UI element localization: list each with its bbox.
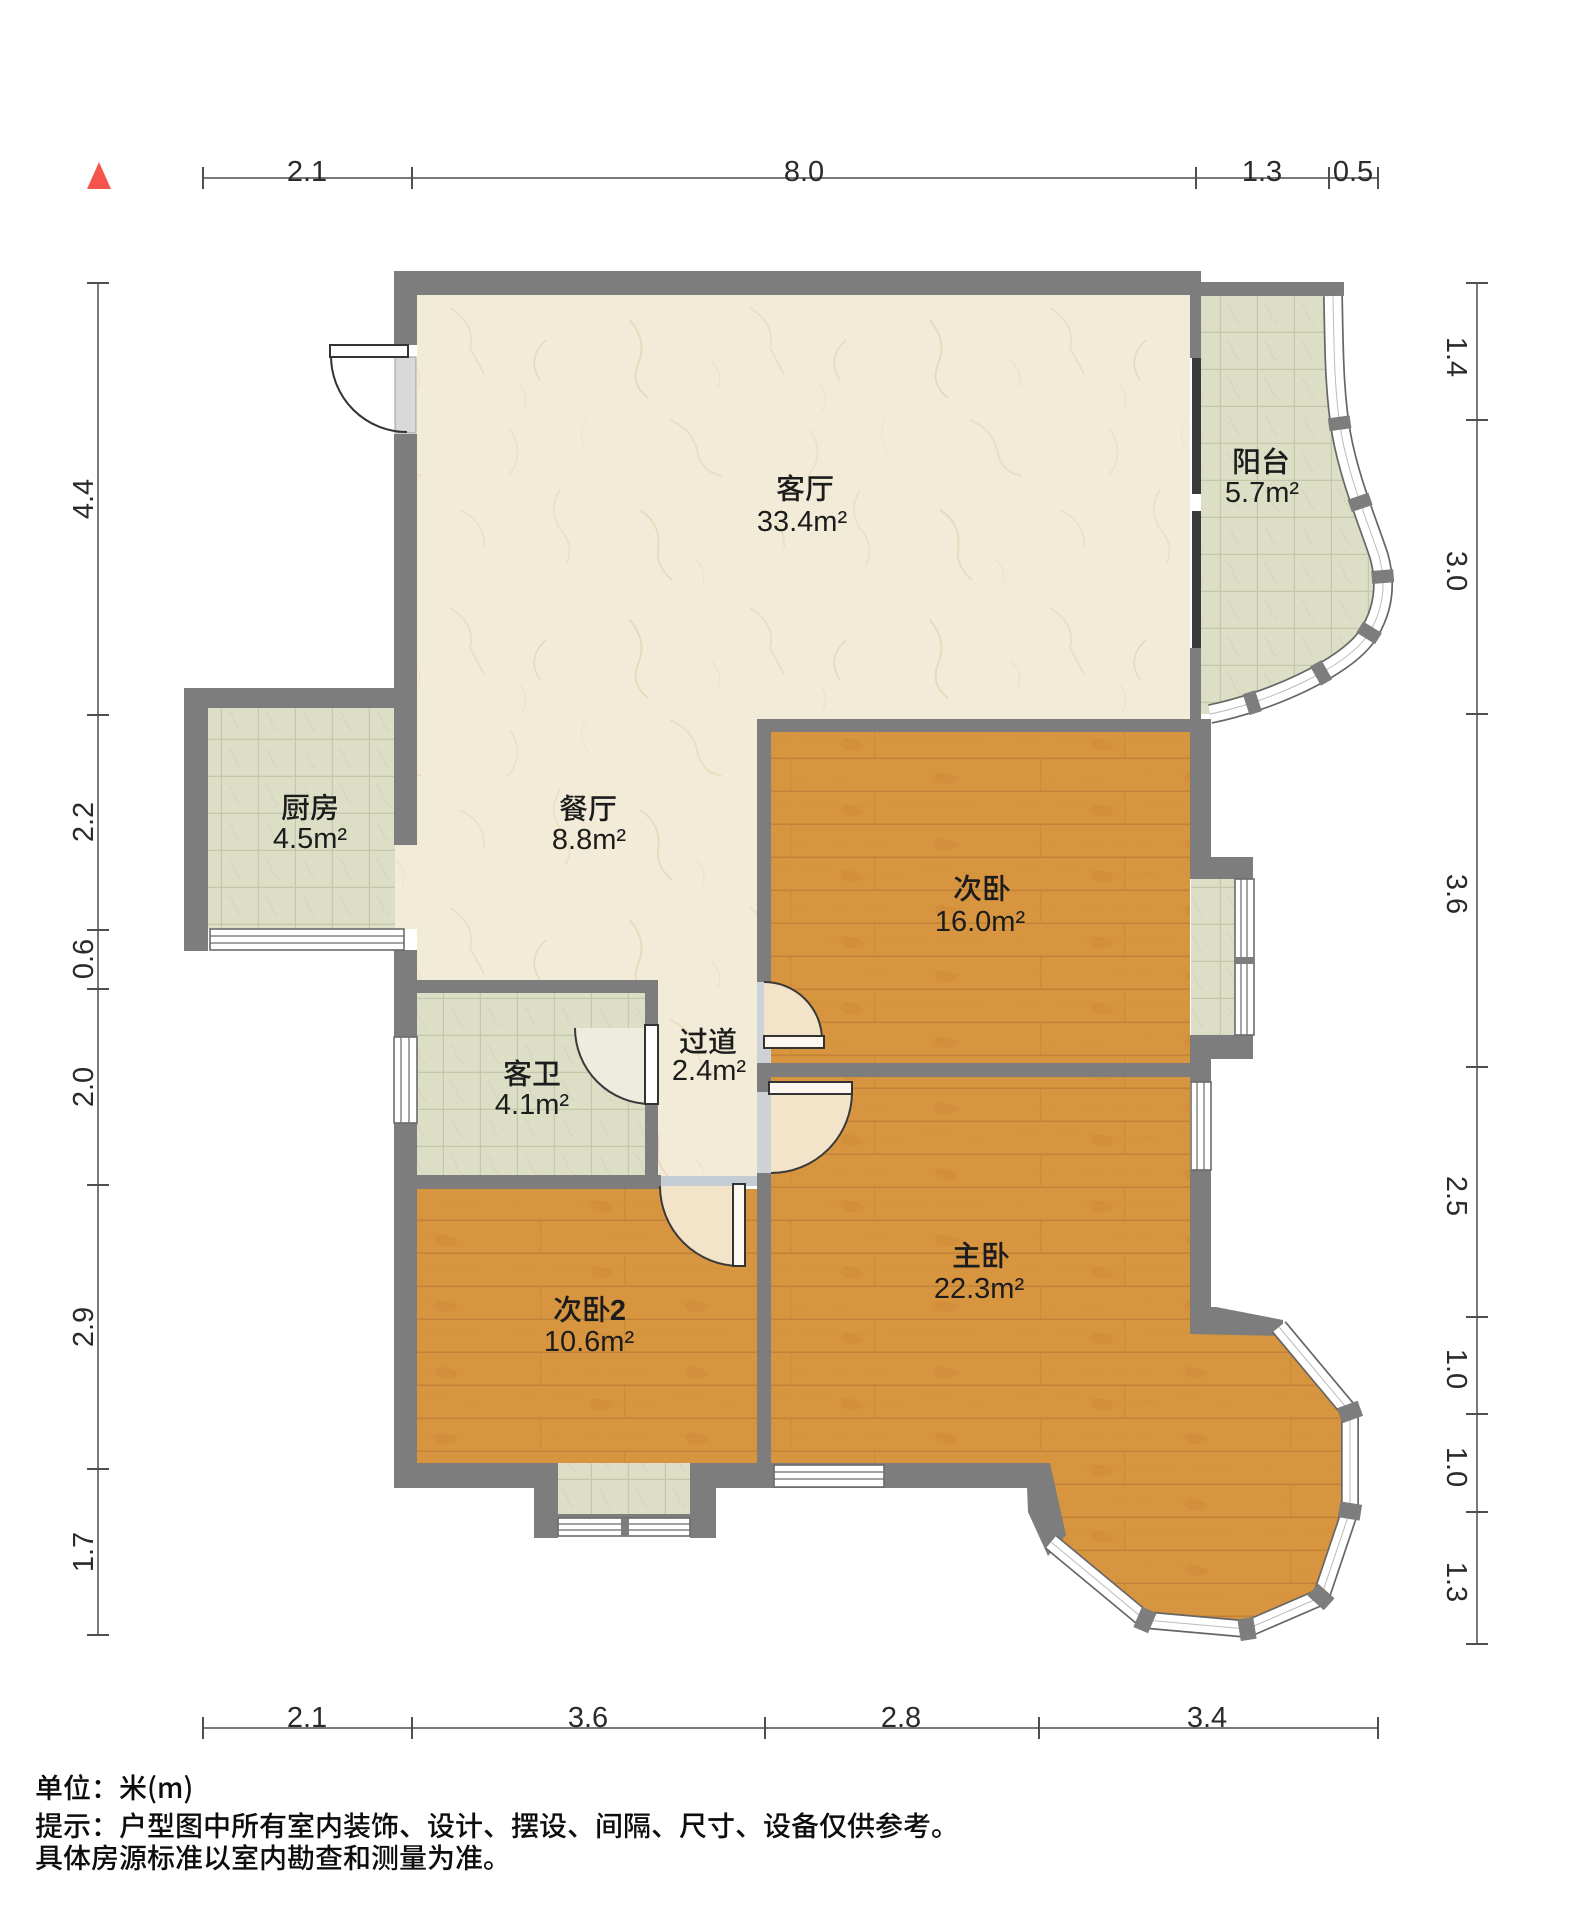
svg-text:2.4m²: 2.4m² [672, 1055, 746, 1087]
svg-text:3.0: 3.0 [1440, 551, 1472, 591]
svg-text:5.7m²: 5.7m² [1225, 477, 1299, 509]
svg-text:3.4: 3.4 [1187, 1702, 1227, 1734]
svg-text:3.6: 3.6 [568, 1702, 608, 1734]
svg-text:2.9: 2.9 [68, 1307, 100, 1347]
svg-text:2.5: 2.5 [1440, 1176, 1472, 1216]
svg-text:1.3: 1.3 [1440, 1562, 1472, 1602]
svg-text:1.3: 1.3 [1242, 156, 1282, 188]
svg-text:2.1: 2.1 [287, 156, 327, 188]
svg-text:3.6: 3.6 [1440, 874, 1472, 914]
svg-text:2.2: 2.2 [68, 802, 100, 842]
svg-text:0.6: 0.6 [68, 939, 100, 979]
svg-text:8.8m²: 8.8m² [552, 824, 626, 856]
svg-text:1.7: 1.7 [68, 1532, 100, 1572]
svg-text:22.3m²: 22.3m² [934, 1273, 1025, 1305]
svg-text:1.0: 1.0 [1440, 1349, 1472, 1389]
svg-text:33.4m²: 33.4m² [757, 506, 848, 538]
svg-text:2.1: 2.1 [287, 1702, 327, 1734]
svg-text:8.0: 8.0 [784, 156, 824, 188]
svg-text:2: 2 [610, 1295, 626, 1327]
svg-text:0.5: 0.5 [1333, 156, 1373, 188]
svg-text:1.4: 1.4 [1440, 337, 1472, 377]
svg-text:2.0: 2.0 [68, 1067, 100, 1107]
svg-text:1.0: 1.0 [1440, 1447, 1472, 1487]
svg-text:2.8: 2.8 [881, 1702, 921, 1734]
svg-text:4.5m²: 4.5m² [273, 823, 347, 855]
svg-text:4.4: 4.4 [68, 479, 100, 519]
svg-text:10.6m²: 10.6m² [544, 1326, 635, 1358]
svg-text:16.0m²: 16.0m² [935, 906, 1026, 938]
svg-text:4.1m²: 4.1m² [495, 1089, 569, 1121]
